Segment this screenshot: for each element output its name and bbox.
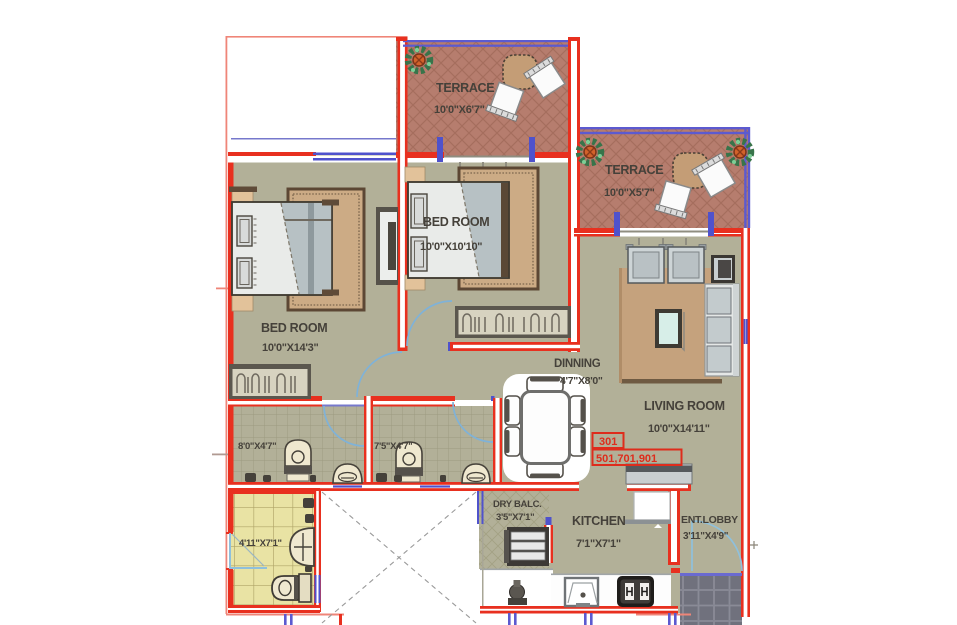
svg-text:DINNING: DINNING bbox=[554, 358, 601, 370]
svg-text:8'0"X4'7": 8'0"X4'7" bbox=[238, 441, 276, 452]
svg-text:10'0"X10'10": 10'0"X10'10" bbox=[420, 241, 482, 253]
svg-text:BED ROOM: BED ROOM bbox=[423, 215, 489, 229]
svg-text:4'11"X7'1": 4'11"X7'1" bbox=[239, 538, 282, 549]
svg-text:10'0"X5'7": 10'0"X5'7" bbox=[604, 187, 655, 199]
svg-text:3'11"X4'9": 3'11"X4'9" bbox=[683, 531, 729, 542]
svg-text:BED ROOM: BED ROOM bbox=[261, 321, 327, 335]
svg-text:10'0"X6'7": 10'0"X6'7" bbox=[434, 104, 485, 116]
svg-text:301: 301 bbox=[599, 436, 617, 448]
svg-text:10'0"X14'11": 10'0"X14'11" bbox=[648, 423, 710, 435]
svg-text:KITCHEN: KITCHEN bbox=[572, 514, 626, 528]
svg-text:7'5"X4'7": 7'5"X4'7" bbox=[374, 441, 412, 452]
svg-text:TERRACE: TERRACE bbox=[605, 163, 663, 177]
svg-text:10'0"X14'3": 10'0"X14'3" bbox=[262, 342, 318, 354]
svg-text:3'5"X7'1": 3'5"X7'1" bbox=[496, 512, 534, 523]
svg-text:4'7"X8'0": 4'7"X8'0" bbox=[560, 375, 603, 387]
svg-text:DRY BALC.: DRY BALC. bbox=[493, 499, 542, 510]
svg-text:TERRACE: TERRACE bbox=[436, 81, 494, 95]
svg-text:LIVING ROOM: LIVING ROOM bbox=[644, 399, 725, 413]
svg-text:ENT.LOBBY: ENT.LOBBY bbox=[681, 514, 738, 526]
svg-text:7'1"X7'1": 7'1"X7'1" bbox=[576, 538, 621, 550]
svg-text:501,701,901: 501,701,901 bbox=[596, 453, 657, 465]
